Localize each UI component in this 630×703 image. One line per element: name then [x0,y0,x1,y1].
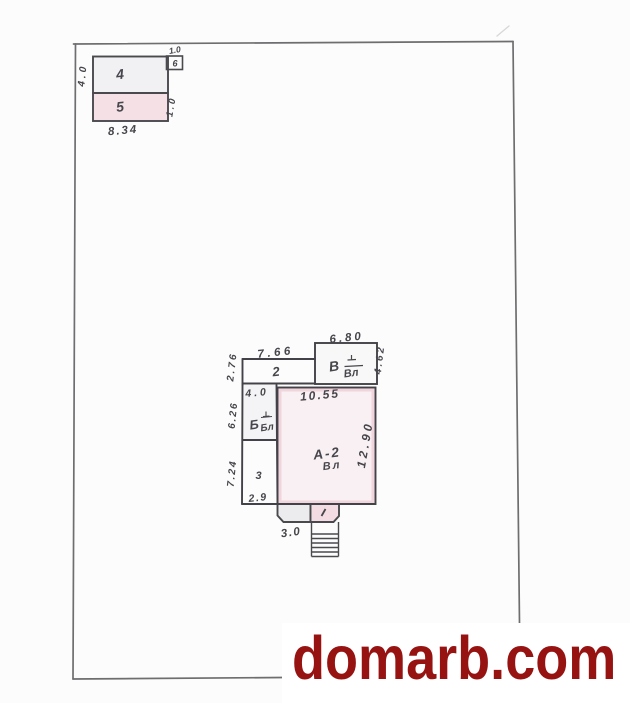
svg-text:3: 3 [255,470,261,482]
svg-text:1.0: 1.0 [168,44,182,56]
svg-text:Вл: Вл [343,366,359,380]
svg-text:4.0: 4.0 [244,386,270,400]
svg-text:2.9: 2.9 [247,491,268,505]
svg-text:Бл: Бл [260,422,276,435]
svg-text:Вл: Вл [322,459,342,473]
